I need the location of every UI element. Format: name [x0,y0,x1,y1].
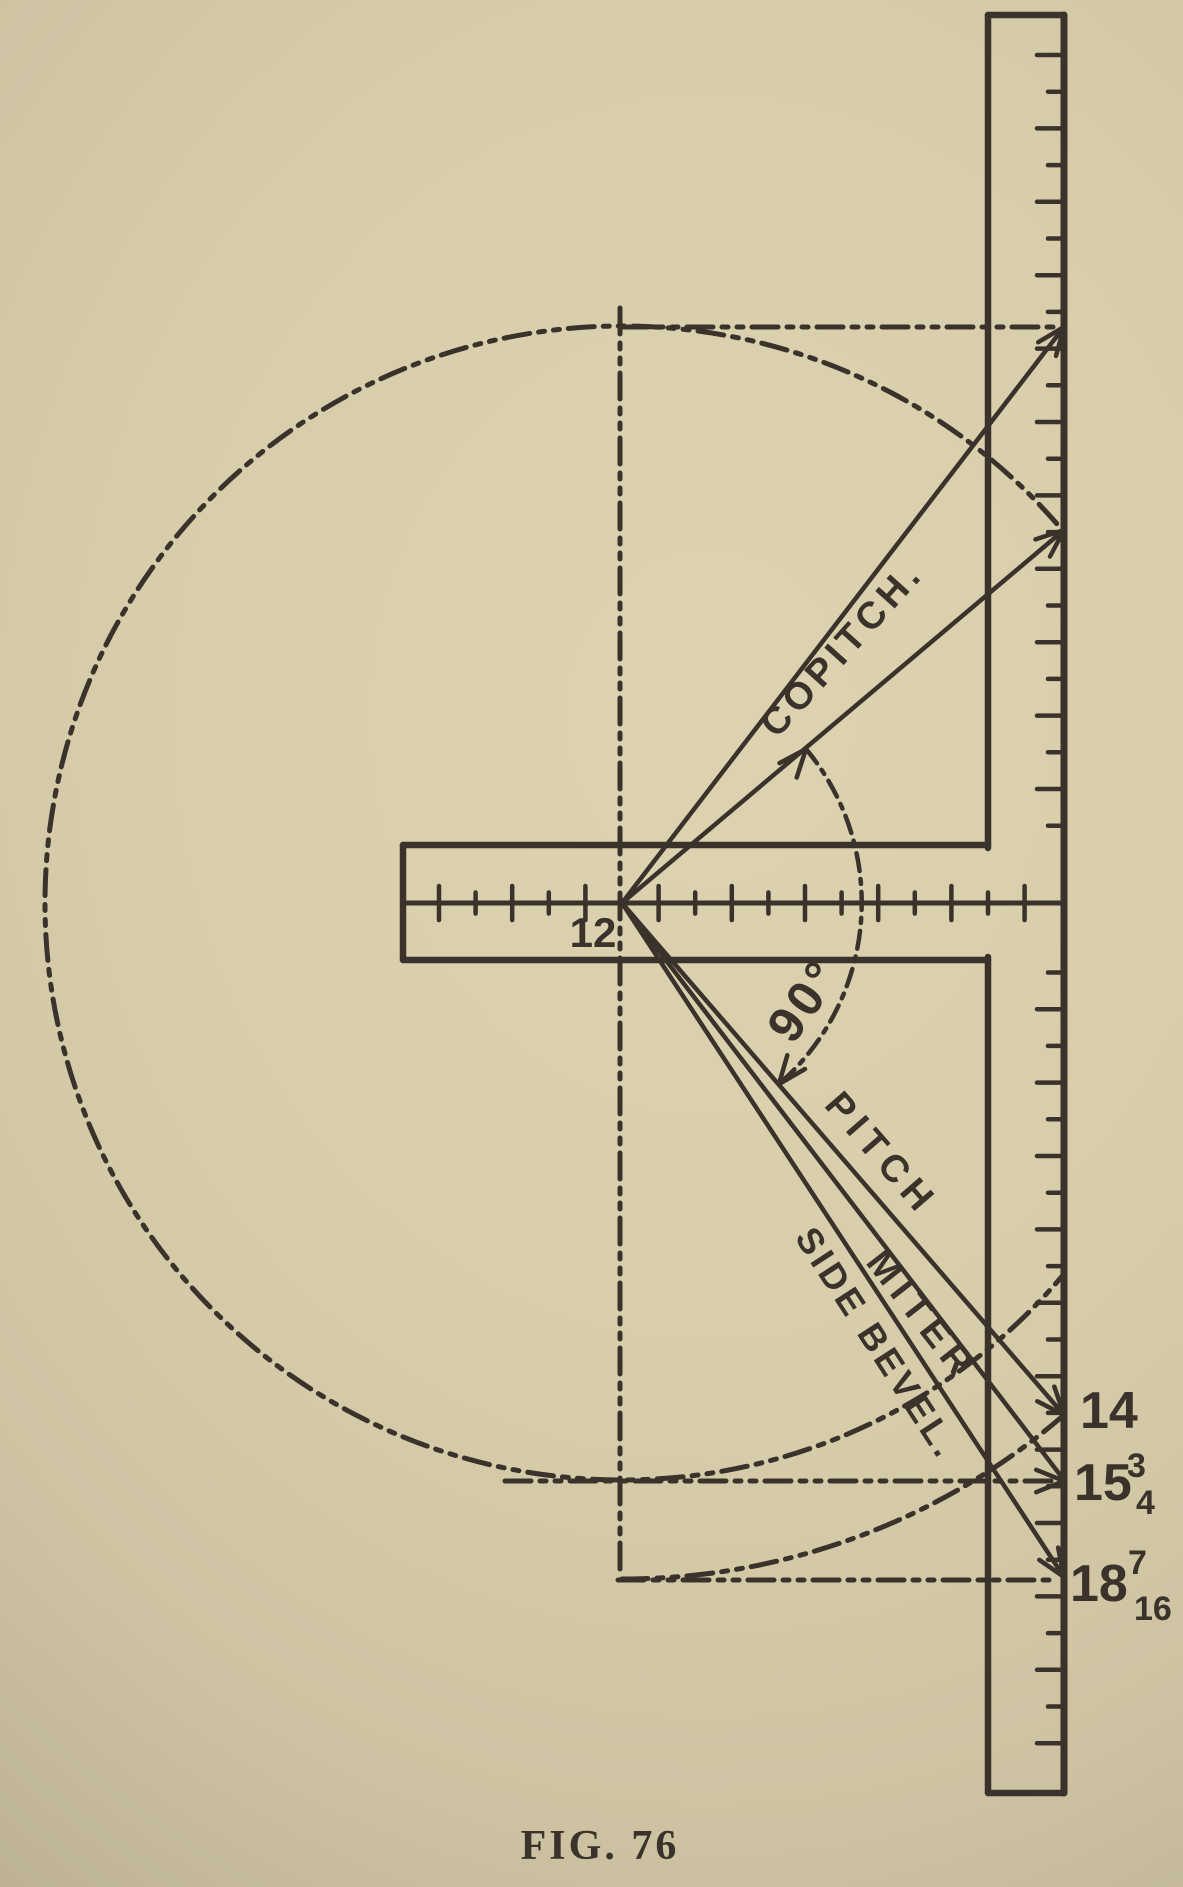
side-bevel-value-denominator: 16 [1134,1590,1172,1628]
angle-arc-top-arrow [780,749,807,778]
run-value: 12 [570,909,617,956]
side-bevel-value: 18 [1070,1555,1128,1613]
pitch-value: 14 [1080,1382,1138,1440]
miter-value-numerator: 3 [1127,1447,1146,1485]
side-bevel-arrow [1039,1548,1064,1577]
copitch-upper-line [622,327,1064,903]
side-bevel-line [622,903,1064,1577]
framing-square-diagram: COPITCH.90°PITCHMITERSIDE BEVEL.12141534… [0,0,1183,1887]
miter-value-denominator: 4 [1136,1484,1155,1522]
ninety-degree-label: 90° [756,948,852,1052]
figure-page: COPITCH.90°PITCHMITERSIDE BEVEL.12141534… [0,0,1183,1887]
pitch-swing-arc [622,1415,1064,1579]
figure-caption: FIG. 76 [440,1822,760,1870]
side-bevel-value-numerator: 7 [1128,1544,1147,1582]
miter-value: 15 [1074,1454,1132,1512]
